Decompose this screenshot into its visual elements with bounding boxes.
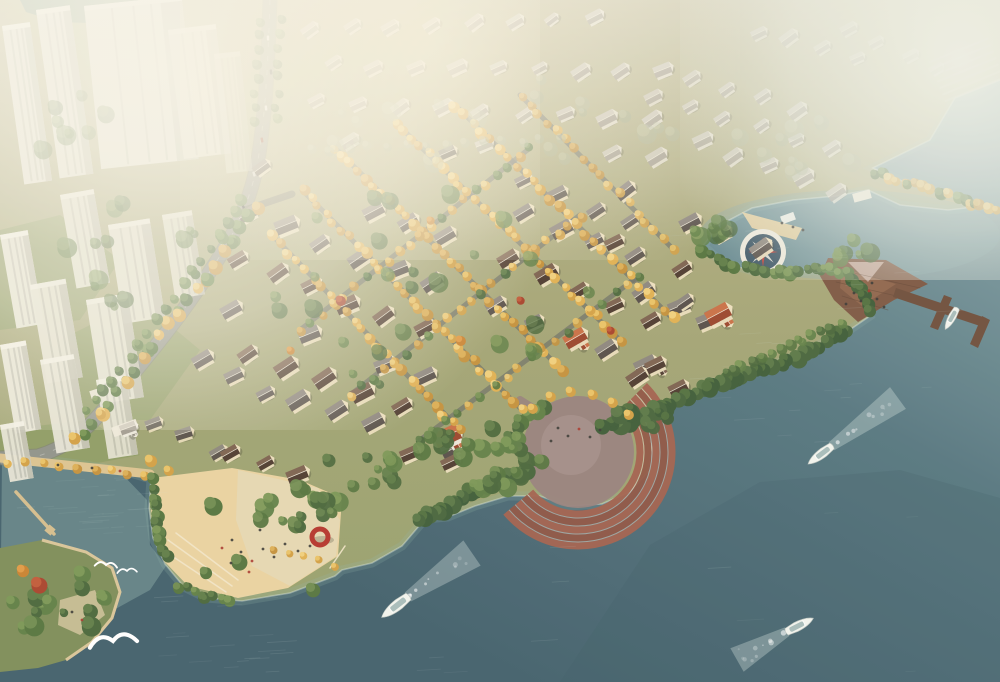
warm-veil [0, 0, 1000, 682]
haze-overlays [0, 0, 1000, 682]
villa-community-rendering [0, 0, 1000, 682]
aerial-rendering-scene [0, 0, 1000, 682]
